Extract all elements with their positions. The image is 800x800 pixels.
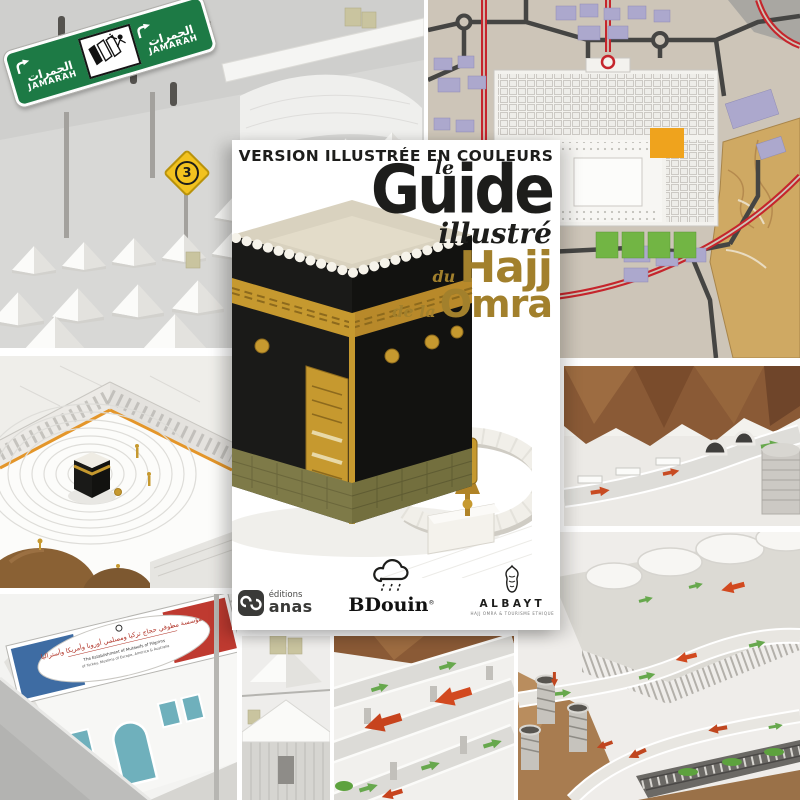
- albayt-name: ALBAYT: [480, 598, 546, 610]
- editions-anas-monogram-icon: [238, 590, 264, 616]
- route-number: 3: [182, 166, 191, 181]
- title-omra: Omra: [440, 282, 552, 326]
- street-scene-illustration: مؤسسة مطوفي حجاج تركيا ومسلمي أوروبا وأم…: [0, 594, 237, 800]
- editions-anas-logo: éditions anas: [238, 590, 313, 616]
- jamarat-stoning-pictogram-icon: [78, 24, 142, 80]
- cloud-rain-icon: [368, 556, 414, 594]
- bdouin-logo: BDouin®: [348, 556, 434, 616]
- jamarat-complex-illustration: [518, 532, 800, 800]
- albayt-emblem-icon: [500, 564, 524, 596]
- lamp-post: [214, 594, 219, 800]
- anas-line2: anas: [269, 599, 313, 614]
- mountain-tunnel-illustration: [564, 366, 800, 526]
- bdouin-name: BDouin: [348, 594, 428, 616]
- book-cover: VERSION ILLUSTRÉE EN COULEURS: [232, 140, 560, 630]
- jamarah-sign-right: الجمرات JAMARAH: [134, 8, 207, 59]
- title-prefix-omra: de la: [392, 302, 435, 321]
- poster-collage: الجمرات JAMARAH الجمرات: [0, 0, 800, 800]
- cover-title: le Guide illustré duHajj de laOmra: [371, 168, 552, 321]
- tent-camp-illustration: [242, 636, 330, 800]
- title-main: Guide: [371, 162, 552, 219]
- jamarah-sign-left: الجمرات JAMARAH: [13, 44, 86, 95]
- albayt-tagline: HAJJ OMRA & TOURISME ETHIQUE: [470, 611, 554, 616]
- albayt-logo: ALBAYT HAJJ OMRA & TOURISME ETHIQUE: [470, 564, 554, 616]
- publisher-logos: éditions anas BDouin® ALBAYT HAJJ OMRA &…: [232, 556, 560, 616]
- kaaba-mini: [68, 452, 116, 504]
- highway-arrows-illustration: [334, 636, 514, 800]
- kaaba-courtyard-illustration: [0, 356, 232, 588]
- registered-mark: ®: [428, 600, 434, 607]
